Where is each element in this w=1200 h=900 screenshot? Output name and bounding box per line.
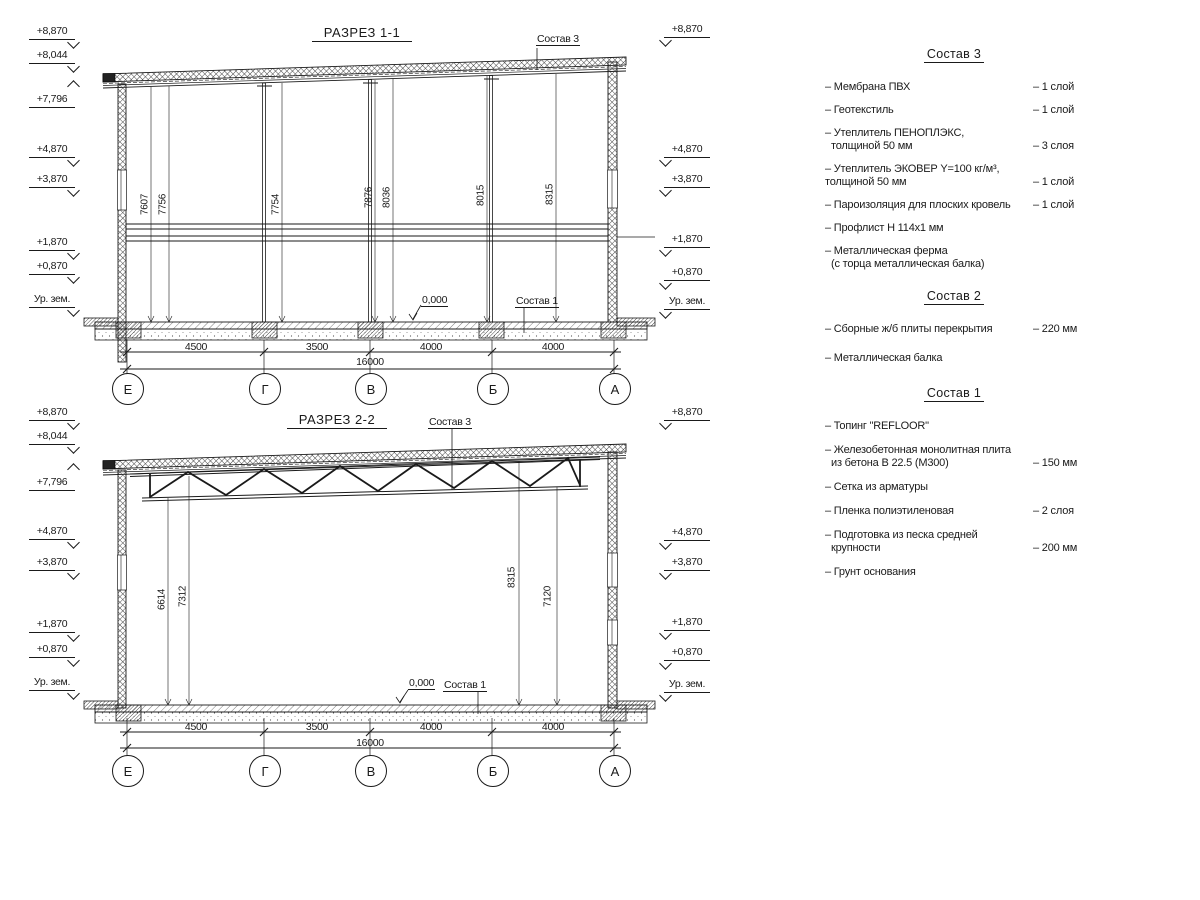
composition-title-text: Состав 3: [924, 47, 984, 63]
axis-bubble: Б: [477, 755, 509, 787]
elevation-mark: +8,870: [664, 406, 710, 421]
composition-item: – Металлическая балка: [825, 352, 1083, 365]
vertical-dimension: 7876: [364, 181, 375, 215]
composition-title-text: Состав 1: [924, 386, 984, 402]
elevation-value: +1,870: [672, 616, 703, 628]
composition-block-2: Состав 2 – Сборные ж/б плиты перекрытия …: [825, 287, 1083, 375]
elevation-value: Ур. зем.: [34, 293, 70, 305]
elevation-mark: +8,870: [29, 406, 75, 421]
item-qty: – 3 слоя: [1033, 140, 1074, 153]
elevation-arrow-icon: [67, 463, 80, 476]
composition-item: – Пароизоляция для плоских кровель – 1 с…: [825, 199, 1083, 212]
item-text: – Топинг "REFLOOR": [825, 420, 1083, 433]
axis-bubble: А: [599, 373, 631, 405]
item-text: – Металлическая балка: [825, 352, 1083, 365]
elevation-mark: +3,870: [664, 556, 710, 571]
item-text: (с торца металлическая балка): [825, 258, 1083, 271]
columns: [257, 76, 499, 323]
elevation-mark: +8,870: [664, 23, 710, 38]
elevation-value: +4,870: [672, 526, 703, 538]
item-qty: – 1 слой: [1033, 199, 1074, 212]
item-text: – Сетка из арматуры: [825, 481, 1083, 494]
elevation-value: +0,870: [672, 266, 703, 278]
elevation-value: +4,870: [37, 525, 68, 537]
axis-letter: В: [367, 764, 376, 779]
roof: [103, 444, 626, 475]
elevation-mark: +0,870: [664, 266, 710, 281]
axis-letter: Б: [489, 382, 498, 397]
elevation-mark: +1,870: [29, 618, 75, 633]
elevation-value: +4,870: [37, 143, 68, 155]
composition-item: – Профлист Н 114х1 мм: [825, 222, 1083, 235]
item-qty: – 1 слой: [1033, 81, 1074, 94]
section-1-title: РАЗРЕЗ 1-1: [312, 25, 412, 42]
elevation-mark: +4,870: [29, 143, 75, 158]
floor: [84, 701, 655, 723]
span-dimension: 4500: [171, 341, 221, 353]
elevation-value: +8,870: [37, 406, 68, 418]
item-text: – Утеплитель ЭКОВЕР Y=100 кг/м³,: [825, 163, 1083, 176]
section-1-roof-label: Состав 3: [536, 33, 580, 46]
elevation-arrow-icon: [67, 184, 80, 197]
elevation-mark: Ур. зем.: [664, 295, 710, 310]
total-dimension: 16000: [345, 737, 395, 749]
elevation-mark: +8,044: [29, 430, 75, 445]
elevation-arrow-icon: [67, 629, 80, 642]
section-1-floor-label: Состав 1: [515, 295, 559, 308]
composition-title: Состав 3: [825, 45, 1083, 63]
elevation-mark: +0,870: [29, 260, 75, 275]
item-qty: – 220 мм: [1033, 323, 1077, 336]
axis-letter: Г: [261, 764, 268, 779]
elevation-arrow-icon: [67, 304, 80, 317]
elevation-arrow-icon: [67, 247, 80, 260]
vertical-dim-lines: [148, 74, 559, 322]
elevation-mark: +1,870: [29, 236, 75, 251]
axis-letter: Г: [261, 382, 268, 397]
elevation-arrow-icon: [67, 567, 80, 580]
span-dimension: 4000: [528, 341, 578, 353]
axis-bubble: Б: [477, 373, 509, 405]
elevation-value: +8,044: [37, 49, 68, 61]
drawing-sheet: РАЗРЕЗ 1-1 Состав 3 0,000 Состав 1 +8,87…: [0, 0, 1200, 900]
elevation-arrow-icon: [67, 536, 80, 549]
elevation-arrow-icon: [67, 36, 80, 49]
elevation-mark: +3,870: [29, 173, 75, 188]
elevation-value: +8,870: [672, 23, 703, 35]
span-dimension: 4000: [406, 341, 456, 353]
axis-letter: Б: [489, 764, 498, 779]
elevation-mark: Ур. зем.: [29, 676, 75, 691]
item-qty: – 1 слой: [1033, 176, 1074, 189]
composition-item: – Железобетонная монолитная плита из бет…: [825, 444, 1083, 470]
item-qty: – 200 мм: [1033, 542, 1077, 555]
elevation-mark: +4,870: [664, 143, 710, 158]
item-text: – Грунт основания: [825, 566, 1083, 579]
span-dimension: 4000: [528, 721, 578, 733]
elevation-mark: +7,796: [29, 476, 75, 491]
composition-item: – Сборные ж/б плиты перекрытия – 220 мм: [825, 323, 1083, 336]
composition-item: – Подготовка из песка средней крупности …: [825, 529, 1083, 555]
section-1-drawing: [80, 40, 680, 390]
elevation-value: +3,870: [37, 173, 68, 185]
axis-letter: А: [611, 764, 620, 779]
section-1-zero-mark: 0,000: [421, 294, 448, 307]
elevation-mark: +4,870: [664, 526, 710, 541]
total-dimension: 16000: [345, 356, 395, 368]
item-text: – Подготовка из песка средней: [825, 529, 1083, 542]
composition-title: Состав 2: [825, 287, 1083, 305]
elevation-arrow-icon: [67, 687, 80, 700]
composition-block-3: Состав 3 – Мембрана ПВХ – 1 слой – Геоте…: [825, 45, 1083, 281]
elevation-value: +3,870: [672, 173, 703, 185]
composition-item: – Утеплитель ЭКОВЕР Y=100 кг/м³, толщино…: [825, 163, 1083, 189]
composition-item: – Грунт основания: [825, 566, 1083, 579]
elevation-value: +8,870: [672, 406, 703, 418]
elevation-mark: +8,044: [29, 49, 75, 64]
vertical-dimension: 7756: [158, 188, 169, 222]
composition-block-1: Состав 1 – Топинг "REFLOOR" – Железобето…: [825, 384, 1083, 589]
section-2-zero-mark: 0,000: [408, 677, 435, 690]
elevation-mark: +0,870: [29, 643, 75, 658]
item-text: – Профлист Н 114х1 мм: [825, 222, 1083, 235]
section-2-drawing: [80, 410, 680, 760]
elevation-value: +4,870: [672, 143, 703, 155]
elevation-arrow-icon: [67, 80, 80, 93]
elevation-mark: +8,870: [29, 25, 75, 40]
axis-bubble: Г: [249, 755, 281, 787]
elevation-value: Ур. зем.: [669, 678, 705, 690]
vertical-dimension: 7754: [271, 188, 282, 222]
vertical-dim-lines: [165, 461, 560, 705]
elevation-arrow-icon: [67, 654, 80, 667]
section-2-roof-label: Состав 3: [428, 416, 472, 429]
axis-letter: Е: [124, 382, 133, 397]
composition-item: – Сетка из арматуры: [825, 481, 1083, 494]
elevation-mark: Ур. зем.: [664, 678, 710, 693]
composition-title-text: Состав 2: [924, 289, 984, 305]
elevation-value: +8,044: [37, 430, 68, 442]
composition-item: – Пленка полиэтиленовая – 2 слоя: [825, 505, 1083, 518]
elevation-value: +3,870: [37, 556, 68, 568]
axis-letter: Е: [124, 764, 133, 779]
elevation-value: +3,870: [672, 556, 703, 568]
vertical-dimension: 7312: [178, 580, 189, 614]
elevation-value: +0,870: [672, 646, 703, 658]
span-dimension: 3500: [292, 721, 342, 733]
vertical-dimension: 7607: [140, 188, 151, 222]
item-qty: – 2 слоя: [1033, 505, 1074, 518]
elevation-value: +1,870: [672, 233, 703, 245]
elevation-mark: Ур. зем.: [29, 293, 75, 308]
axis-letter: В: [367, 382, 376, 397]
section-2-title: РАЗРЕЗ 2-2: [287, 412, 387, 429]
elevation-value: +0,870: [37, 643, 68, 655]
elevation-value: Ур. зем.: [669, 295, 705, 307]
item-text: – Железобетонная монолитная плита: [825, 444, 1083, 457]
elevation-mark: +4,870: [29, 525, 75, 540]
elevation-value: +8,870: [37, 25, 68, 37]
item-text: – Металлическая ферма: [825, 245, 1083, 258]
axis-bubble: Е: [112, 755, 144, 787]
elevation-value: +7,796: [37, 476, 68, 488]
axis-bubble: В: [355, 373, 387, 405]
elevation-arrow-icon: [67, 271, 80, 284]
elevation-value: +0,870: [37, 260, 68, 272]
elevation-arrow-icon: [67, 441, 80, 454]
vertical-dimension: 8315: [507, 561, 518, 595]
composition-item: – Металлическая ферма (с торца металличе…: [825, 245, 1083, 271]
elevation-mark: +1,870: [664, 616, 710, 631]
axis-bubble: Е: [112, 373, 144, 405]
elevation-value: +7,796: [37, 93, 68, 105]
composition-item: – Топинг "REFLOOR": [825, 420, 1083, 433]
elevation-arrow-icon: [67, 60, 80, 73]
composition-item: – Геотекстиль – 1 слой: [825, 104, 1083, 117]
axis-bubble: А: [599, 755, 631, 787]
composition-item: – Утеплитель ПЕНОПЛЭКС, толщиной 50 мм –…: [825, 127, 1083, 153]
item-qty: – 150 мм: [1033, 457, 1077, 470]
elevation-value: Ур. зем.: [34, 676, 70, 688]
leader-lines: [409, 48, 537, 333]
elevation-value: +1,870: [37, 236, 68, 248]
leader-lines: [396, 428, 478, 714]
axis-bubble: В: [355, 755, 387, 787]
elevation-mark: +3,870: [664, 173, 710, 188]
vertical-dimension: 6614: [157, 583, 168, 617]
elevation-mark: +1,870: [664, 233, 710, 248]
elevation-mark: +3,870: [29, 556, 75, 571]
span-dimension: 3500: [292, 341, 342, 353]
elevation-arrow-icon: [67, 417, 80, 430]
mezzanine-beams: [126, 224, 655, 241]
axis-letter: А: [611, 382, 620, 397]
axis-bubble: Г: [249, 373, 281, 405]
section-2-floor-label: Состав 1: [443, 679, 487, 692]
composition-title: Состав 1: [825, 384, 1083, 402]
elevation-mark: +7,796: [29, 93, 75, 108]
item-text: – Утеплитель ПЕНОПЛЭКС,: [825, 127, 1083, 140]
elevation-arrow-icon: [67, 154, 80, 167]
vertical-dimension: 7120: [543, 580, 554, 614]
elevation-value: +1,870: [37, 618, 68, 630]
vertical-dimension: 8315: [545, 178, 556, 212]
elevation-mark: +0,870: [664, 646, 710, 661]
vertical-dimension: 8036: [382, 181, 393, 215]
vertical-dimension: 8015: [476, 179, 487, 213]
item-qty: – 1 слой: [1033, 104, 1074, 117]
span-dimension: 4000: [406, 721, 456, 733]
composition-item: – Мембрана ПВХ – 1 слой: [825, 81, 1083, 94]
span-dimension: 4500: [171, 721, 221, 733]
